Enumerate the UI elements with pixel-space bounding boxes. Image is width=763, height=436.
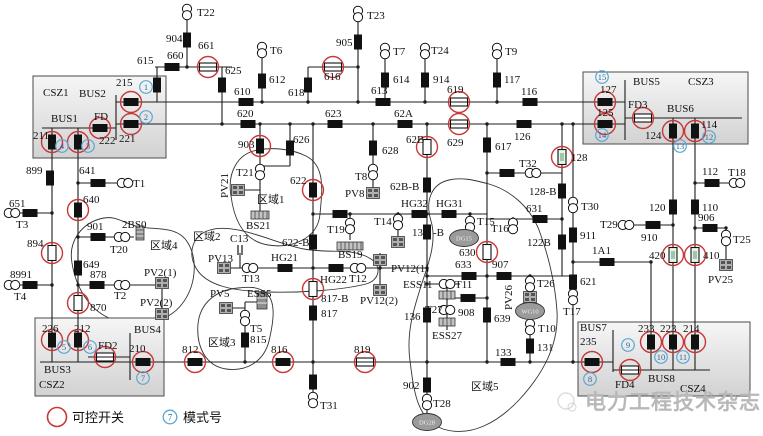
legend-controllable-switch-icon	[48, 408, 67, 427]
pv-cell	[157, 310, 161, 313]
switch-223	[669, 335, 677, 350]
junction-dot	[560, 122, 563, 125]
switch-open-inner	[671, 251, 675, 259]
transformer-icon-T1	[124, 178, 133, 187]
label-区域2: 区域2	[193, 230, 221, 243]
switch-214	[691, 335, 699, 350]
label-T19: T19	[327, 224, 345, 236]
pv-cell	[157, 279, 161, 282]
switch-641	[91, 179, 106, 187]
switch-210	[136, 358, 151, 366]
mode-number-6: 6	[88, 342, 92, 352]
switch-623	[328, 120, 343, 128]
label-639: 639	[494, 313, 511, 325]
switch-235	[585, 358, 600, 366]
label-T4: T4	[14, 291, 27, 303]
label-626: 626	[293, 134, 310, 146]
label-BUS1: BUS1	[51, 113, 78, 125]
label-904: 904	[166, 33, 183, 45]
transformer-icon-T24	[420, 50, 429, 59]
label-区域5: 区域5	[471, 380, 499, 393]
label-PV12(1): PV12(1)	[391, 263, 429, 275]
label-T2: T2	[114, 290, 126, 302]
switch-133	[501, 358, 516, 366]
label-区域1: 区域1	[257, 193, 285, 206]
pv-cell	[375, 261, 379, 264]
switch-62A	[398, 120, 413, 128]
switch-112	[705, 179, 720, 187]
transformer-icon-T6	[257, 49, 266, 58]
junction-dot	[693, 181, 696, 184]
switch-open-894	[48, 246, 56, 261]
label-631: 631	[526, 203, 543, 215]
switch-114	[691, 124, 699, 139]
switch-131	[526, 339, 534, 354]
label-PV21: PV21	[219, 173, 231, 198]
mode-number-11: 11	[679, 352, 687, 362]
switch-910	[646, 221, 661, 229]
switch-622-B	[309, 235, 317, 250]
mode-number-3: 3	[86, 141, 90, 151]
transformer-icon-T29	[625, 220, 634, 229]
switch-126	[517, 120, 532, 128]
label-FD: FD	[94, 111, 108, 123]
switch-1A1	[600, 258, 615, 266]
label-612: 612	[269, 74, 286, 86]
pv-cell	[393, 238, 397, 241]
junction-dot	[485, 360, 488, 363]
switch-817	[309, 306, 317, 321]
switch-HG32	[412, 210, 427, 218]
label-PV2(2): PV2(2)	[140, 297, 173, 309]
switch-HG31	[442, 210, 457, 218]
switch-610	[239, 98, 254, 106]
pv-cell	[374, 194, 378, 197]
label-T32: T32	[519, 158, 537, 170]
label-610: 610	[234, 86, 251, 98]
label-899: 899	[26, 165, 43, 177]
label-T6: T6	[270, 45, 283, 57]
label-127: 127	[600, 84, 617, 96]
junction-dot	[571, 122, 574, 125]
pv-cell	[375, 291, 379, 294]
label-PV5: PV5	[210, 288, 230, 300]
pv-cell	[219, 269, 223, 272]
label-621: 621	[580, 276, 597, 288]
mode-number-8: 8	[588, 374, 592, 384]
label-630: 630	[459, 247, 476, 259]
label-BUS5: BUS5	[633, 76, 660, 88]
switch-618	[304, 78, 312, 93]
pv-cell	[163, 279, 167, 282]
junction-dot	[485, 274, 488, 277]
power-network-diagram: DG15WG10DG28T22904660615661625610612T661…	[0, 0, 763, 436]
switch-904	[183, 33, 191, 48]
label-226: 226	[42, 323, 59, 335]
label-125: 125	[597, 107, 614, 119]
label-T25: T25	[733, 234, 751, 246]
label-T8: T8	[355, 171, 368, 183]
transformer-icon-T9	[492, 50, 501, 59]
pv-cell	[233, 191, 237, 194]
label-T23: T23	[367, 10, 385, 22]
label-FD2: FD2	[98, 340, 118, 352]
label-911: 911	[580, 230, 596, 242]
junction-dot	[260, 100, 263, 103]
transformer-icon-T22	[182, 11, 191, 20]
pv-cell	[239, 186, 243, 189]
switch-open-870	[74, 296, 82, 311]
junction-dot	[185, 65, 188, 68]
junction-dot	[311, 266, 314, 269]
transformer-icon-T18	[736, 178, 745, 187]
mode-number-15: 15	[598, 72, 607, 82]
label-C13: C13	[230, 233, 249, 245]
label-PV8: PV8	[345, 188, 365, 200]
label-T28: T28	[433, 398, 451, 410]
switch-902	[423, 378, 431, 393]
junction-dot	[356, 65, 359, 68]
label-T11: T11	[455, 279, 472, 291]
switch-816	[276, 358, 291, 366]
label-617: 617	[495, 141, 512, 153]
transformer-icon-T12	[357, 263, 366, 272]
label-222: 222	[99, 135, 116, 147]
label-8991: 8991	[10, 269, 32, 281]
junction-dot	[425, 360, 428, 363]
transformer-icon-T7	[380, 50, 389, 59]
switch-13-B	[423, 225, 431, 240]
pv-cell	[227, 309, 231, 312]
label-124: 124	[645, 130, 662, 142]
junction-dot	[571, 360, 574, 363]
label-T9: T9	[505, 46, 518, 58]
junction-dot	[348, 212, 351, 215]
label-641: 641	[79, 165, 96, 177]
junction-dot	[485, 296, 488, 299]
switch-612	[258, 74, 266, 89]
label-629: 629	[447, 137, 464, 149]
label-2BS0: 2BS0	[122, 219, 147, 231]
junction-dot	[560, 217, 563, 220]
junction-dot	[468, 212, 471, 215]
pv-cell	[233, 186, 237, 189]
junction-dot	[311, 212, 314, 215]
switch-sw-a	[333, 210, 348, 218]
switch-617	[483, 138, 491, 153]
junction-dot	[311, 360, 314, 363]
label-T14: T14	[374, 216, 392, 228]
label-623: 623	[325, 108, 342, 120]
label-T26: T26	[537, 278, 555, 290]
label-BS21: BS21	[246, 220, 270, 232]
label-235: 235	[580, 336, 597, 348]
label-812: 812	[182, 344, 199, 356]
switch-221	[124, 120, 139, 128]
label-BUS2: BUS2	[79, 88, 106, 100]
label-905: 905	[336, 37, 353, 49]
label-233: 233	[638, 323, 655, 335]
transformer-icon-T21	[255, 171, 264, 180]
label-640: 640	[83, 194, 100, 206]
label-902: 902	[403, 380, 420, 392]
transformer-icon-T27	[446, 305, 455, 314]
label-633: 633	[455, 259, 472, 271]
pv-cell	[227, 304, 231, 307]
switch-901	[91, 233, 106, 241]
label-T22: T22	[197, 7, 215, 19]
label-T31: T31	[320, 400, 338, 412]
switch-899	[46, 171, 54, 186]
junction-dot	[50, 283, 53, 286]
label-620: 620	[237, 108, 254, 120]
label-CSZ3: CSZ3	[688, 76, 714, 88]
label-210: 210	[129, 343, 146, 355]
switch-620	[241, 120, 256, 128]
switch-open-817-B	[309, 282, 317, 297]
label-614: 614	[393, 74, 410, 86]
pv-cell	[525, 293, 529, 296]
label-651: 651	[9, 198, 26, 210]
junction-dot	[311, 122, 314, 125]
pv-cell	[368, 189, 372, 192]
transformer-icon-T5	[240, 317, 249, 326]
label-BUS4: BUS4	[134, 324, 161, 336]
pv-cell	[381, 286, 385, 289]
label-910: 910	[641, 232, 658, 244]
label-T1: T1	[133, 178, 145, 190]
pv-cell	[163, 310, 167, 313]
transformer-icon-T19	[345, 225, 354, 234]
pv-cell	[381, 291, 385, 294]
pv-cell	[727, 266, 731, 269]
transformer-icon-T26	[525, 283, 534, 292]
label-T27: T27	[425, 304, 443, 316]
switch-222	[74, 135, 82, 150]
transformer-icon-T10	[525, 326, 534, 335]
label-HG21: HG21	[271, 252, 298, 264]
junction-dot	[258, 122, 261, 125]
switch-sw-ess	[461, 294, 476, 302]
transformer-icon-T4	[11, 280, 20, 289]
switch-120	[669, 200, 677, 215]
label-622-B: 622-B	[282, 237, 310, 249]
label-T5: T5	[250, 323, 263, 335]
label-ESS11: ESS11	[403, 279, 433, 291]
switch-125	[598, 120, 613, 128]
pv-cell	[375, 256, 379, 259]
junction-dot	[495, 100, 498, 103]
switch-812	[188, 358, 203, 366]
label-62B: 62B	[406, 134, 424, 146]
transformer-icon-T13	[249, 263, 258, 272]
junction-dot	[76, 235, 79, 238]
label-PV12(2): PV12(2)	[360, 295, 398, 307]
label-616: 616	[324, 71, 341, 83]
label-906: 906	[698, 212, 715, 224]
switch-sw-t31	[309, 375, 317, 390]
label-PV13: PV13	[208, 253, 234, 265]
label-HG31: HG31	[436, 198, 463, 210]
junction-dot	[76, 283, 79, 286]
label-214: 214	[683, 323, 700, 335]
switch-open-inner	[560, 153, 564, 161]
label-HG22: HG22	[320, 274, 347, 286]
label-62A: 62A	[394, 108, 413, 120]
label-128: 128	[571, 152, 588, 164]
label-PV2(1): PV2(1)	[144, 267, 177, 279]
switch-651	[23, 209, 38, 217]
label-816: 816	[271, 344, 288, 356]
transformer-icon-T8	[368, 171, 377, 180]
label-BS19: BS19	[338, 249, 363, 261]
label-211: 211	[33, 130, 49, 142]
label-619: 619	[447, 84, 464, 96]
label-215: 215	[116, 77, 133, 89]
switch-124	[669, 124, 677, 139]
transformer-icon-T31	[308, 399, 317, 408]
transformer-icon-T16	[508, 225, 517, 234]
switch-911	[569, 228, 577, 243]
mode-number-9: 9	[626, 340, 630, 350]
mode-number-7: 7	[141, 373, 145, 383]
switch-HG21	[278, 264, 293, 272]
label-870: 870	[90, 302, 107, 314]
switch-FD	[93, 124, 108, 132]
label-117: 117	[504, 74, 521, 86]
junction-dot	[571, 260, 574, 263]
label-CSZ2: CSZ2	[39, 379, 65, 391]
legend-controllable-switch-label: 可控开关	[72, 410, 124, 425]
label-628: 628	[382, 145, 399, 157]
switch-903	[256, 139, 264, 154]
switch-878	[90, 281, 105, 289]
label-CSZ1: CSZ1	[43, 87, 69, 99]
label-126: 126	[514, 131, 531, 143]
label-128-B: 128-B	[529, 186, 557, 198]
mode-number-2: 2	[144, 112, 148, 122]
battery-icon-BS21	[251, 211, 269, 219]
switch-116	[523, 98, 538, 106]
junction-dot	[423, 100, 426, 103]
switch-62B-B	[423, 178, 431, 193]
label-133: 133	[495, 347, 512, 359]
transformer-icon-T20	[121, 232, 130, 241]
switch-117	[493, 73, 501, 88]
transformer-icon-T2	[121, 280, 130, 289]
pv-cell	[381, 256, 385, 259]
mode-number-14: 14	[598, 130, 607, 140]
mode-number-10: 10	[657, 352, 666, 362]
switch-615	[153, 78, 161, 93]
junction-dot	[485, 122, 488, 125]
pv-cell	[221, 309, 225, 312]
junction-dot	[528, 360, 531, 363]
pv-cell	[163, 315, 167, 318]
label-660: 660	[167, 50, 184, 62]
label-420: 420	[649, 250, 666, 262]
label-T13: T13	[242, 273, 260, 285]
junction-dot	[378, 266, 381, 269]
label-122B: 122B	[527, 237, 551, 249]
switch-233	[647, 335, 655, 350]
label-T7: T7	[393, 46, 406, 58]
pv-cell	[531, 293, 535, 296]
label-T12: T12	[349, 273, 367, 285]
pv-cell	[375, 286, 379, 289]
transformer-icon-T23	[353, 13, 362, 22]
switch-127	[598, 98, 613, 106]
switch-122B	[558, 235, 566, 250]
label-114: 114	[701, 119, 718, 131]
pv-cell	[393, 243, 397, 246]
junction-dot	[485, 171, 488, 174]
transformer-icon-T11	[446, 279, 455, 288]
switch-906	[703, 224, 718, 232]
label-PV26: PV26	[503, 284, 515, 310]
label-136: 136	[404, 311, 421, 323]
junction-dot	[243, 360, 246, 363]
label-ESS5: ESS5	[247, 288, 272, 300]
junction-dot	[371, 122, 374, 125]
label-903: 903	[238, 139, 255, 151]
pv-cell	[157, 284, 161, 287]
label-PV25: PV25	[708, 274, 734, 286]
label-908: 908	[458, 307, 475, 319]
switch-640	[74, 203, 82, 218]
junction-dot	[693, 226, 696, 229]
junction-dot	[76, 181, 79, 184]
label-T24: T24	[431, 45, 449, 57]
mode-number-12: 12	[705, 132, 714, 142]
label-HG32: HG32	[401, 198, 428, 210]
pv-cell	[239, 191, 243, 194]
label-T29: T29	[600, 219, 618, 231]
switch-211	[48, 135, 56, 150]
label-618: 618	[288, 87, 305, 99]
label-223: 223	[660, 323, 677, 335]
label-T20: T20	[110, 244, 128, 256]
pv-cell	[225, 269, 229, 272]
label-BUS8: BUS8	[648, 373, 675, 385]
label-212: 212	[74, 323, 91, 335]
pv-cell	[525, 298, 529, 301]
pv-cell	[531, 298, 535, 301]
label-ESS27: ESS27	[432, 330, 462, 342]
pv-cell	[221, 304, 225, 307]
switch-905	[354, 35, 362, 50]
label-BUS7: BUS7	[580, 322, 607, 334]
switch-628	[369, 141, 377, 156]
legend-mode-label: 模式号	[183, 410, 222, 425]
pv-cell	[381, 261, 385, 264]
label-815: 815	[250, 334, 267, 346]
junction-dot	[220, 122, 223, 125]
generator-label-DG28: DG28	[419, 420, 435, 427]
label-112: 112	[702, 166, 718, 178]
transformer-icon-T14	[393, 221, 402, 230]
label-T21: T21	[236, 167, 254, 179]
mode-number-13: 13	[676, 141, 685, 151]
transformer-icon-T28	[422, 401, 431, 410]
diagram-canvas: DG15WG10DG28T22904660615661625610612T661…	[0, 0, 763, 436]
pv-cell	[368, 194, 372, 197]
transformer-icon-T17	[568, 296, 577, 305]
label-625: 625	[225, 65, 242, 77]
label-901: 901	[87, 221, 104, 233]
label-13: 13	[412, 227, 424, 239]
label-BUS3: BUS3	[44, 364, 71, 376]
